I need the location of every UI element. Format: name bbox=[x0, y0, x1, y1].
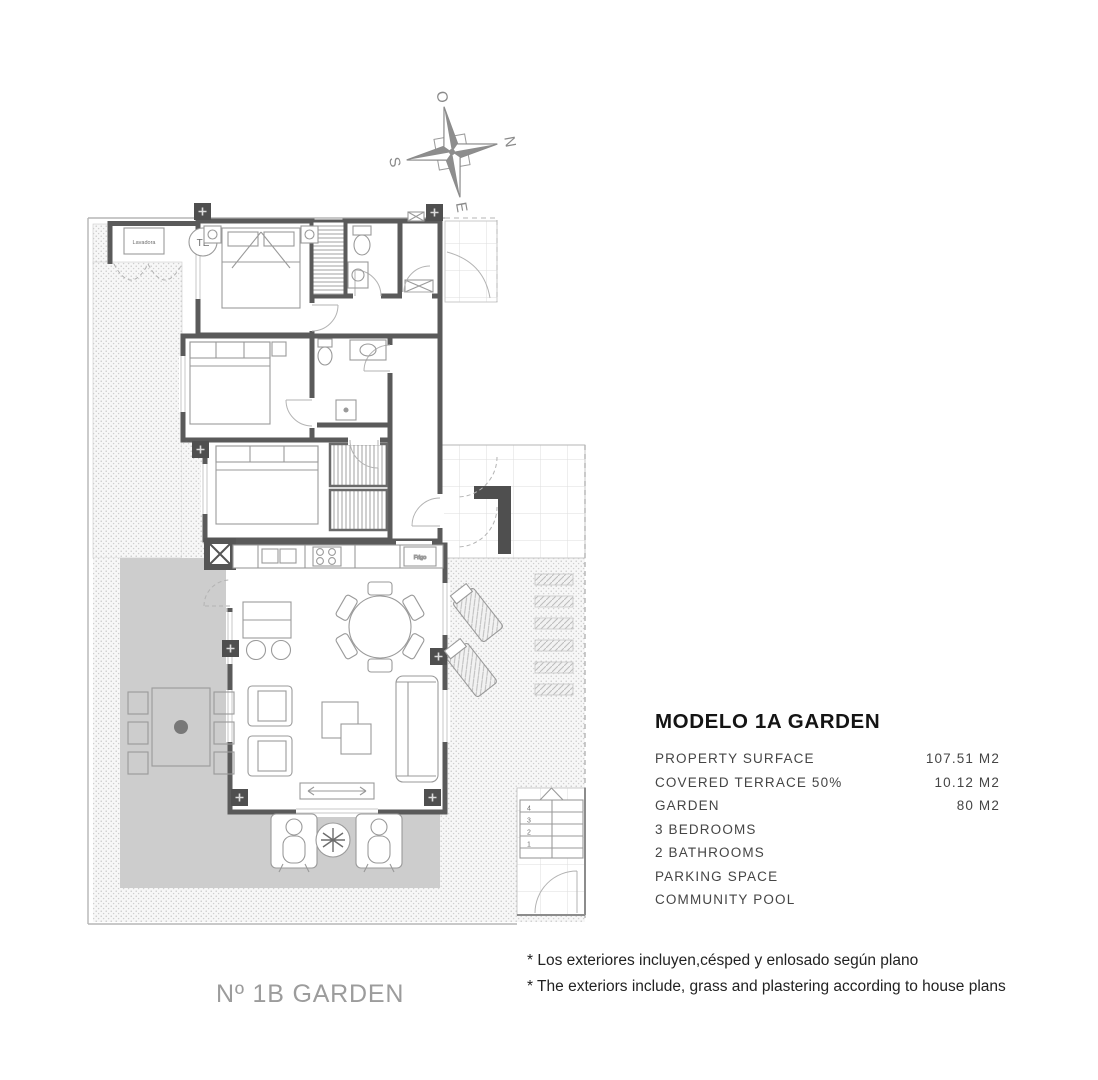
washer-label: Lavadora bbox=[133, 240, 157, 246]
spec-row: 2 BATHROOMS bbox=[655, 841, 1000, 865]
lounger-person-1 bbox=[271, 814, 317, 872]
garden-strip-left bbox=[93, 262, 182, 558]
spec-row: PARKING SPACE bbox=[655, 865, 1000, 889]
court-top-right bbox=[445, 221, 497, 302]
spec-row: PROPERTY SURFACE107.51 M2 bbox=[655, 747, 1000, 771]
spec-row: COMMUNITY POOL bbox=[655, 888, 1000, 912]
stair-step-4: 4 bbox=[527, 806, 531, 813]
compass-west-letter: O bbox=[432, 90, 451, 104]
compass-east-letter: E bbox=[452, 201, 470, 214]
footnote-es: * Los exteriores incluyen,césped y enlos… bbox=[527, 948, 1006, 974]
spec-row: GARDEN80 M2 bbox=[655, 794, 1000, 818]
kitchen: Frigo bbox=[233, 545, 443, 568]
slider-marker bbox=[300, 783, 374, 799]
footnotes: * Los exteriores incluyen,césped y enlos… bbox=[527, 948, 1006, 1000]
garden-band-bottom bbox=[93, 888, 585, 922]
bathroom-2 bbox=[312, 336, 390, 425]
compass-north-letter: N bbox=[500, 135, 519, 149]
bed-3 bbox=[216, 446, 318, 524]
sofa bbox=[396, 676, 438, 782]
lounger-person-2 bbox=[356, 814, 402, 872]
footnote-en: * The exteriors include, grass and plast… bbox=[527, 974, 1006, 1000]
shaft bbox=[204, 538, 236, 570]
spec-row: COVERED TERRACE 50%10.12 M2 bbox=[655, 771, 1000, 795]
specs-panel: MODELO 1A GARDEN PROPERTY SURFACE107.51 … bbox=[655, 710, 1000, 912]
dining-table bbox=[335, 582, 425, 672]
stair-step-3: 3 bbox=[527, 818, 531, 825]
compass-rose: N E S O bbox=[375, 79, 528, 223]
court-entrance bbox=[440, 445, 585, 558]
stair-step-2: 2 bbox=[527, 830, 531, 837]
spec-row: 3 BEDROOMS bbox=[655, 818, 1000, 842]
compass-south-letter: S bbox=[385, 156, 403, 169]
stair-step-1: 1 bbox=[527, 842, 531, 849]
garden-band-left bbox=[93, 558, 120, 922]
model-title: MODELO 1A GARDEN bbox=[655, 710, 1000, 734]
unit-label: Nº 1B GARDEN bbox=[216, 980, 404, 1009]
wardrobe-3b bbox=[330, 490, 387, 530]
corridor bbox=[390, 336, 440, 541]
floorplan-page: Lavadora TE bbox=[0, 0, 1098, 1080]
hall-top bbox=[312, 296, 440, 336]
floorplan-drawing: Lavadora TE bbox=[0, 0, 1098, 1080]
fridge-label: Frigo bbox=[414, 555, 427, 561]
